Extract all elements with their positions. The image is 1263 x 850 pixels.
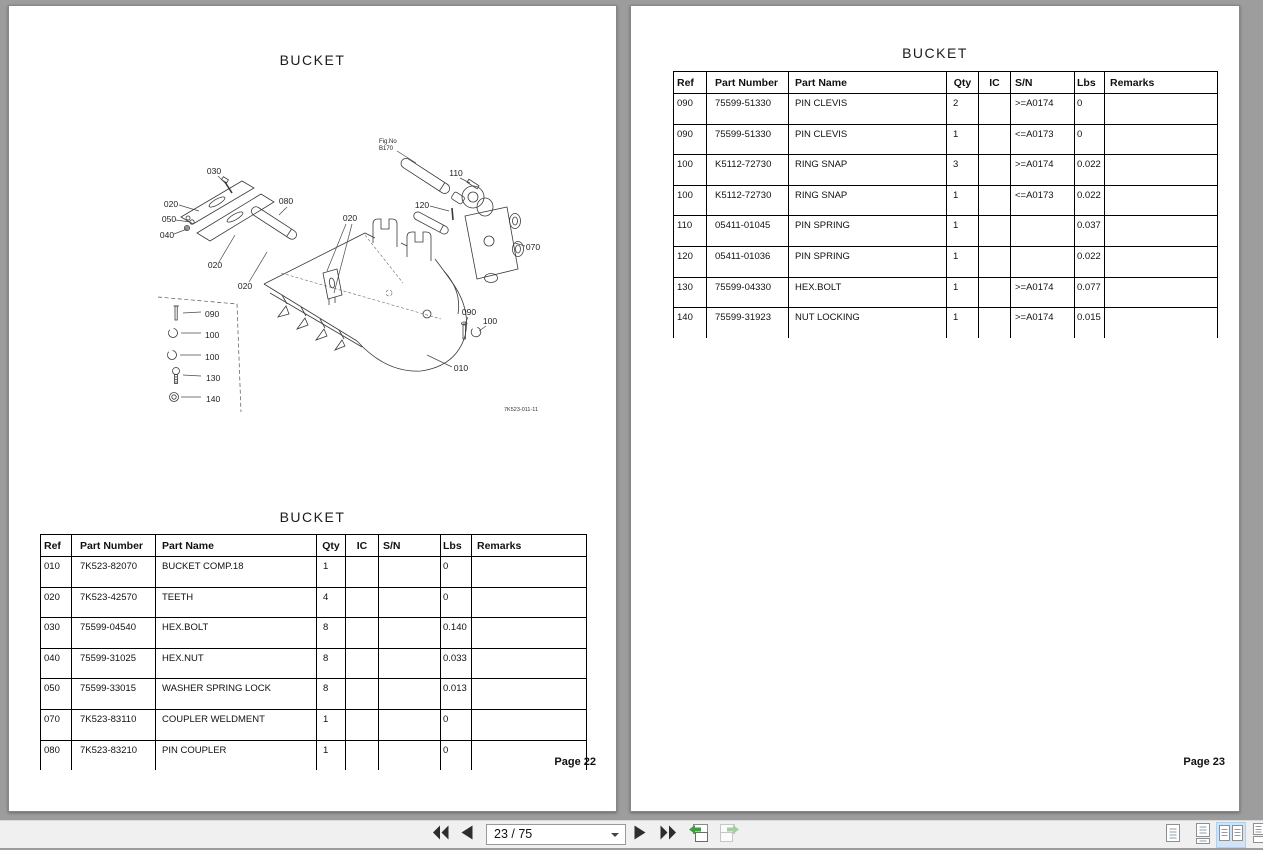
table-cell: 080 [41,740,72,770]
table-cell: 1 [947,308,979,338]
table-cell [472,587,587,618]
continuous-view-icon [1189,821,1217,850]
table-cell: 7K523-83210 [72,740,156,770]
table-cell: 0.077 [1075,277,1105,308]
table-cell [1105,216,1218,247]
single-page-view-button[interactable] [1158,822,1188,848]
table-cell [1105,246,1218,277]
table-cell: RING SNAP [789,185,947,216]
side-cutter-plates [181,181,274,241]
previous-view-icon [688,824,710,847]
column-header-remarks: Remarks [472,535,587,557]
hex-bolt-130-glyph [173,368,180,384]
last-page-icon [659,825,677,845]
table-cell: 020 [41,587,72,618]
callout-030: 030 [207,166,221,176]
column-header-ref: Ref [674,72,707,94]
callout-010: 010 [454,363,468,373]
table-cell: PIN CLEVIS [789,124,947,155]
column-header-qty: Qty [317,535,346,557]
column-header-part-name: Part Name [789,72,947,94]
table-cell [1011,216,1075,247]
two-page-view-button[interactable] [1216,822,1246,848]
table-cell [379,557,441,588]
table-cell: 1 [947,277,979,308]
two-page-continuous-view-icon [1251,821,1263,850]
bolt-030-glyph [222,177,232,193]
table-cell: 8 [317,618,346,649]
column-header-ic: IC [346,535,379,557]
table-row: 11005411-01045PIN SPRING10.037 [674,216,1218,247]
two-page-view-icon [1217,821,1245,850]
table-cell: 7K523-42570 [72,587,156,618]
previous-page-icon [461,825,473,845]
two-page-continuous-view-button[interactable] [1250,822,1263,848]
table-cell: PIN CLEVIS [789,94,947,125]
table-row: 09075599-51330PIN CLEVIS1<=A01730 [674,124,1218,155]
table-cell [979,124,1011,155]
table-cell [472,557,587,588]
table-row: 12005411-01036PIN SPRING10.022 [674,246,1218,277]
page-title: BUCKET [9,52,616,68]
fig-no-label-line1: Fig.No [379,139,397,145]
table-cell: 1 [317,557,346,588]
table-cell: 05411-01045 [707,216,789,247]
table-row: 09075599-51330PIN CLEVIS2>=A01740 [674,94,1218,125]
callout-020b: 020 [208,260,222,270]
table-cell: >=A0174 [1011,277,1075,308]
column-header-s-n: S/N [1011,72,1075,94]
table-cell: 1 [947,246,979,277]
table-cell: 0.022 [1075,246,1105,277]
table-cell [379,587,441,618]
table-cell [346,618,379,649]
table-cell [979,94,1011,125]
table-cell: NUT LOCKING [789,308,947,338]
column-header-ref: Ref [41,535,72,557]
column-header-lbs: Lbs [441,535,472,557]
table-cell: 75599-31923 [707,308,789,338]
table-cell: 75599-51330 [707,124,789,155]
callout-050: 050 [162,214,176,224]
table-cell [346,557,379,588]
table-cell [1105,94,1218,125]
table-cell: 0 [441,709,472,740]
table-cell [379,618,441,649]
table-row: 05075599-33015WASHER SPRING LOCK80.013 [41,679,587,710]
table-cell: 1 [317,740,346,770]
single-page-view-icon [1159,821,1187,850]
table-cell: 75599-33015 [72,679,156,710]
document-page-22: BUCKET [8,5,617,812]
table-cell: 0 [441,740,472,770]
first-page-icon [432,825,450,845]
table-cell: 0.013 [441,679,472,710]
table-cell: 7K523-83110 [72,709,156,740]
callout-040: 040 [160,230,174,240]
header-row: RefPart NumberPart NameQtyICS/NLbsRemark… [41,535,587,557]
table-cell: WASHER SPRING LOCK [156,679,317,710]
callout-070: 070 [526,242,540,252]
page-number-footer: Page 22 [554,756,596,768]
table-cell [346,740,379,770]
table-cell [979,216,1011,247]
table-cell: 1 [947,185,979,216]
table-cell: <=A0173 [1011,185,1075,216]
callout-020d: 020 [343,213,357,223]
table-cell [472,709,587,740]
table-cell: 140 [674,308,707,338]
pin-clevis-090-left-glyph [174,306,180,320]
column-header-qty: Qty [947,72,979,94]
table-cell [979,308,1011,338]
table-cell: 2 [947,94,979,125]
table-cell: 030 [41,618,72,649]
table-cell: 110 [674,216,707,247]
ring-snap-100a-glyph [167,327,179,339]
table-cell [379,709,441,740]
column-header-lbs: Lbs [1075,72,1105,94]
table-cell: 120 [674,246,707,277]
table-cell: 8 [317,648,346,679]
table-cell: 4 [317,587,346,618]
last-page-button[interactable] [656,824,680,846]
table-cell: 75599-31025 [72,648,156,679]
table-cell: K5112-72730 [707,185,789,216]
pdf-viewer-window: { "pages": { "left": { "title": "BUCKET"… [0,0,1263,848]
table-cell: 040 [41,648,72,679]
table-cell: 0.037 [1075,216,1105,247]
column-header-remarks: Remarks [1105,72,1218,94]
callout-090-right: 090 [462,307,476,317]
table-cell: TEETH [156,587,317,618]
bucket-body [264,219,467,371]
table-cell [472,618,587,649]
callout-100-right: 100 [483,316,497,326]
table-cell: 0 [441,587,472,618]
callout-090-left: 090 [205,309,219,319]
table-cell: 0.022 [1075,155,1105,186]
table-cell: 0 [1075,124,1105,155]
callout-110: 110 [449,168,463,178]
table-cell [979,155,1011,186]
table-row: 04075599-31025HEX.NUT80.033 [41,648,587,679]
pin-coupler-080-glyph [250,205,299,241]
table-cell [1011,246,1075,277]
ring-snap-100b-glyph [166,349,178,361]
callout-140: 140 [206,394,220,404]
table-cell: HEX.BOLT [156,618,317,649]
table-cell [1105,308,1218,338]
first-page-button[interactable] [429,824,453,846]
table-cell: 0.140 [441,618,472,649]
table-cell [346,587,379,618]
previous-page-button[interactable] [458,824,476,846]
table-cell: COUPLER WELDMENT [156,709,317,740]
continuous-view-button[interactable] [1188,822,1218,848]
table-cell: RING SNAP [789,155,947,186]
table-cell: 0.015 [1075,308,1105,338]
callout-100-left-a: 100 [205,330,219,340]
table-cell: 75599-04540 [72,618,156,649]
table-cell [472,648,587,679]
table-cell: PIN SPRING [789,246,947,277]
next-page-icon [634,825,646,845]
table-row: 14075599-31923NUT LOCKING1>=A01740.015 [674,308,1218,338]
drawing-number: 7K523-011-11 [504,407,538,413]
table-cell [979,185,1011,216]
table-cell: 090 [674,94,707,125]
column-header-part-number: Part Number [72,535,156,557]
table-cell: 8 [317,679,346,710]
table-cell: 010 [41,557,72,588]
table-cell: 3 [947,155,979,186]
table-row: 03075599-04540HEX.BOLT80.140 [41,618,587,649]
table-cell: 0.033 [441,648,472,679]
column-header-part-number: Part Number [707,72,789,94]
table-cell [979,277,1011,308]
table-cell: BUCKET COMP.18 [156,557,317,588]
next-view-icon [718,824,740,847]
table-cell: HEX.BOLT [789,277,947,308]
nut-locking-140-glyph [170,393,179,402]
table-cell: 0.022 [1075,185,1105,216]
table-row: 0807K523-83210PIN COUPLER10 [41,740,587,770]
table-cell: 0 [1075,94,1105,125]
page-number-input[interactable] [487,826,606,843]
next-page-button[interactable] [631,824,649,846]
table-cell [1105,277,1218,308]
table-cell: 050 [41,679,72,710]
callout-080: 080 [279,196,293,206]
table-cell: PIN SPRING [789,216,947,247]
column-header-part-name: Part Name [156,535,317,557]
bucket-exploded-diagram: 030 020 050 040 020 020 080 020 110 120 … [121,121,566,421]
callout-020a: 020 [164,199,178,209]
table-cell [379,679,441,710]
table-cell: 1 [317,709,346,740]
table-cell [346,679,379,710]
table-cell [1105,185,1218,216]
table-row: 0707K523-83110COUPLER WELDMENT10 [41,709,587,740]
table-cell: 070 [41,709,72,740]
table-cell [379,648,441,679]
coupler-weldment-070 [462,186,524,283]
table-cell: 75599-04330 [707,277,789,308]
table-cell: >=A0174 [1011,94,1075,125]
table-cell [346,709,379,740]
table-cell: 090 [674,124,707,155]
fig-pin-glyph [399,156,465,204]
table-cell: K5112-72730 [707,155,789,186]
table-cell: 7K523-82070 [72,557,156,588]
page-number-combobox[interactable] [486,824,626,845]
table-cell: 0 [441,557,472,588]
table-cell: 130 [674,277,707,308]
table-row: 0107K523-82070BUCKET COMP.1810 [41,557,587,588]
page-title: BUCKET [631,45,1239,61]
table-cell: 100 [674,155,707,186]
viewer-toolbar [0,820,1263,848]
pin-spring-110-glyph [467,179,479,189]
chevron-down-icon[interactable] [611,833,619,837]
leader-lines [174,151,525,397]
table-cell [1105,155,1218,186]
table-row: 100K5112-72730RING SNAP3>=A01740.022 [674,155,1218,186]
document-page-23: BUCKET RefPart NumberPart NameQtyICS/NLb… [630,5,1240,812]
table-row: 0207K523-42570TEETH40 [41,587,587,618]
table-cell: >=A0174 [1011,155,1075,186]
table-cell: HEX.NUT [156,648,317,679]
table-cell [346,648,379,679]
previous-view-button[interactable] [686,824,712,846]
column-header-s-n: S/N [379,535,441,557]
table-cell: 1 [947,124,979,155]
table-cell [1105,124,1218,155]
table-cell: 1 [947,216,979,247]
pin-spring-120-glyph [412,208,453,235]
table-row: 13075599-04330HEX.BOLT1>=A01740.077 [674,277,1218,308]
page-number-footer: Page 23 [1183,756,1225,768]
column-header-ic: IC [979,72,1011,94]
table-cell: >=A0174 [1011,308,1075,338]
header-row: RefPart NumberPart NameQtyICS/NLbsRemark… [674,72,1218,94]
table-cell: <=A0173 [1011,124,1075,155]
table-cell: 75599-51330 [707,94,789,125]
next-view-button[interactable] [716,824,742,846]
table-cell: 05411-01036 [707,246,789,277]
fig-no-label-line2: B170 [379,146,394,152]
table-cell [379,740,441,770]
callout-100-left-b: 100 [205,352,219,362]
table-cell: PIN COUPLER [156,740,317,770]
table-row: 100K5112-72730RING SNAP1<=A01730.022 [674,185,1218,216]
table-title: BUCKET [9,509,616,525]
right-parts-table: RefPart NumberPart NameQtyICS/NLbsRemark… [673,71,1218,338]
callout-130: 130 [206,373,220,383]
callout-020c: 020 [238,281,252,291]
callout-120: 120 [415,200,429,210]
left-parts-table: RefPart NumberPart NameQtyICS/NLbsRemark… [40,534,587,770]
table-cell [472,679,587,710]
ring-snap-100-right-glyph [469,325,483,339]
table-cell: 100 [674,185,707,216]
table-cell [979,246,1011,277]
